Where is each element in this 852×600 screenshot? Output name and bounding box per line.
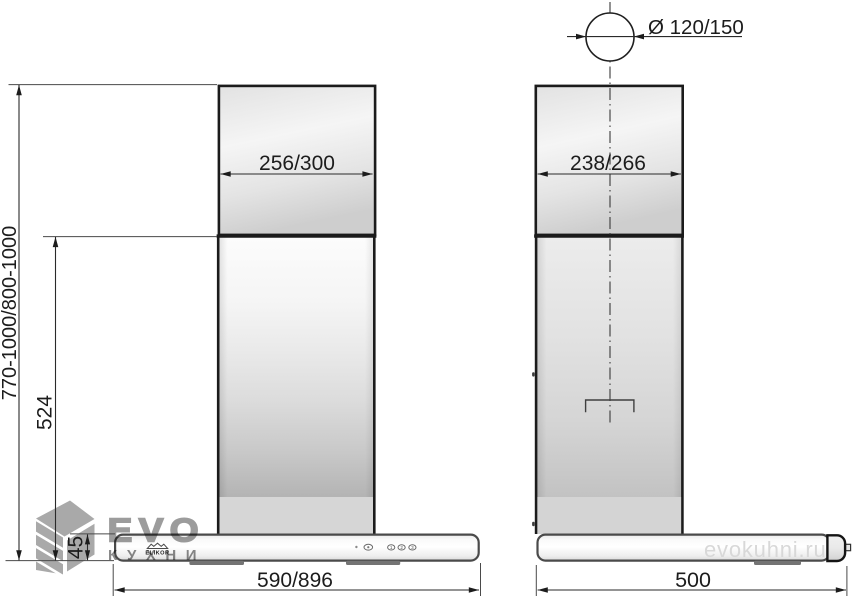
svg-text:238/266: 238/266 <box>570 152 646 175</box>
svg-text:770-1000/800-1000: 770-1000/800-1000 <box>0 226 21 401</box>
svg-text:500: 500 <box>675 568 711 592</box>
svg-text:evokuhni.ru: evokuhni.ru <box>704 537 827 562</box>
svg-text:КУХНИ: КУХНИ <box>108 547 206 564</box>
svg-text:256/300: 256/300 <box>259 152 335 175</box>
svg-text:45: 45 <box>65 536 88 559</box>
svg-text:Ø 120/150: Ø 120/150 <box>648 16 744 39</box>
svg-text:2: 2 <box>400 545 403 550</box>
svg-text:3: 3 <box>411 545 414 550</box>
svg-text:EVO: EVO <box>108 512 205 549</box>
svg-text:524: 524 <box>34 395 57 430</box>
svg-text:590/896: 590/896 <box>257 569 333 592</box>
svg-text:1: 1 <box>390 545 393 550</box>
